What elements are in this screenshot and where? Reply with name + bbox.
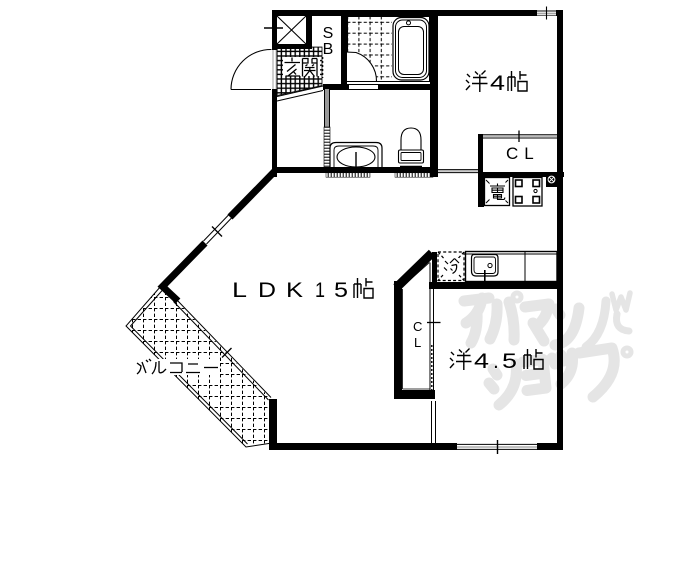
svg-text:CL: CL xyxy=(506,144,540,163)
svg-text:1: 1 xyxy=(315,279,325,302)
svg-text:D: D xyxy=(258,279,276,302)
svg-text:B: B xyxy=(323,41,334,58)
svg-text:.: . xyxy=(493,350,499,373)
svg-text:L: L xyxy=(232,279,247,302)
svg-text:S: S xyxy=(323,25,334,42)
svg-text:C: C xyxy=(413,319,422,334)
svg-text:L: L xyxy=(414,335,421,350)
svg-text:K: K xyxy=(286,279,303,302)
svg-text:5: 5 xyxy=(334,279,348,302)
svg-text:5: 5 xyxy=(502,350,517,373)
svg-text:4: 4 xyxy=(490,72,505,95)
svg-text:4: 4 xyxy=(474,350,489,373)
